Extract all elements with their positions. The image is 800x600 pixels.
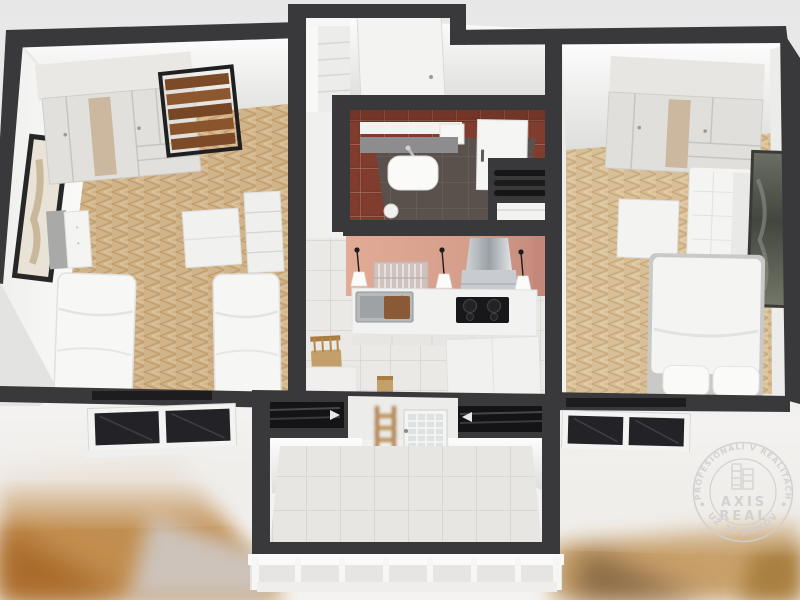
- bedroom-left: [0, 36, 288, 401]
- balcony-window-slot-1: [266, 402, 344, 428]
- double-bed: [647, 253, 766, 401]
- wall-kitchen-top: [343, 220, 548, 236]
- wall-bathroom-top: [346, 95, 560, 110]
- kitchen: [292, 232, 548, 400]
- window-slot-right: [566, 398, 686, 407]
- floor-plan-render: PROFESIONÁLI V REALITÁCH UŽ 20 ROKOV AXI…: [0, 0, 800, 600]
- balcony-jamb-right: [542, 394, 560, 560]
- balcony-railing: [248, 554, 564, 592]
- cutting-board: [384, 296, 410, 319]
- shelf-unit-left: [244, 191, 284, 273]
- pillow: [663, 365, 710, 396]
- watermark-brand-bottom: REAL: [719, 509, 768, 524]
- window-left-exterior: [83, 403, 241, 457]
- dining-chair: [310, 335, 342, 372]
- nightstand-left: [46, 209, 92, 270]
- watermark-brand-top: AXIS: [721, 495, 767, 510]
- balcony-jamb-left: [252, 392, 270, 560]
- wall-divider-right: [545, 30, 562, 398]
- door-handle: [429, 75, 433, 79]
- single-bed-2: [213, 273, 281, 400]
- waste-bin: [384, 204, 398, 218]
- pillow: [713, 366, 760, 397]
- single-bed-1: [54, 273, 136, 402]
- wall-divider-left: [288, 4, 306, 398]
- window-right-exterior: [557, 410, 694, 459]
- entrance-door: [357, 13, 445, 100]
- balcony-floor: [270, 446, 542, 544]
- balcony-window-slot-2: [456, 406, 546, 432]
- washbasin: [388, 156, 438, 190]
- wall-entry-top: [295, 4, 463, 18]
- balcony-door-handle: [404, 429, 408, 433]
- desk-left: [182, 208, 242, 268]
- watermark-trademark: ™: [769, 510, 774, 516]
- cooktop: [456, 297, 509, 323]
- kitchen-cabinet: [446, 336, 541, 399]
- bedroom-right: [562, 42, 791, 401]
- wall-bathroom-left: [332, 95, 350, 232]
- wood-slat-bench: [160, 66, 240, 155]
- window-slot-left: [92, 391, 212, 400]
- sofa-right: [686, 167, 751, 265]
- side-table-right: [617, 199, 679, 259]
- wardrobe-right: [605, 56, 765, 176]
